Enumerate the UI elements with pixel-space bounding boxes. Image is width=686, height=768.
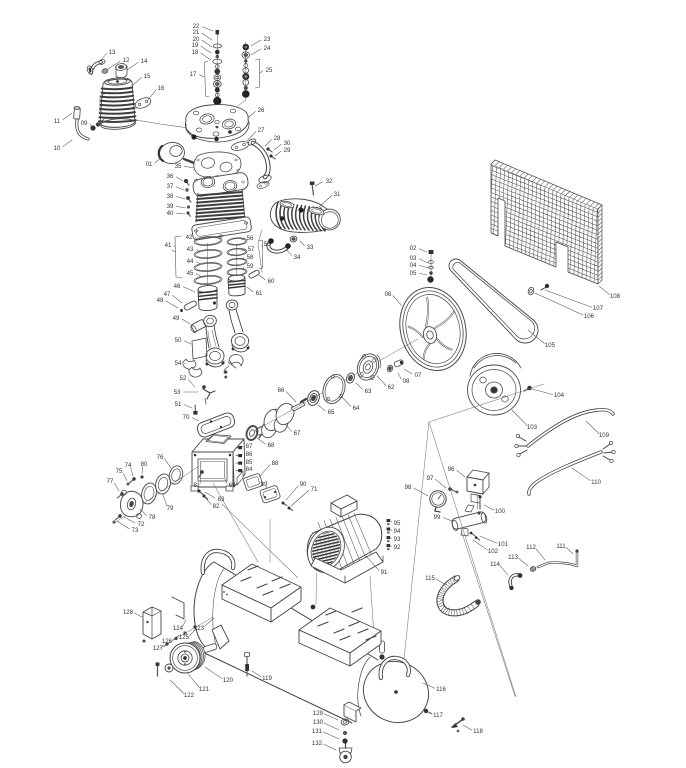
svg-text:04: 04: [410, 262, 417, 269]
svg-text:116: 116: [436, 686, 446, 693]
svg-text:52: 52: [180, 375, 187, 382]
svg-text:56: 56: [247, 235, 254, 242]
svg-text:39: 39: [167, 203, 174, 210]
svg-text:75: 75: [116, 468, 123, 475]
svg-text:58: 58: [247, 254, 254, 261]
svg-text:120: 120: [223, 677, 234, 684]
svg-text:34: 34: [294, 254, 301, 261]
svg-text:118: 118: [473, 728, 483, 735]
svg-text:103: 103: [527, 424, 538, 431]
svg-text:45: 45: [187, 270, 194, 277]
svg-text:91: 91: [381, 569, 388, 576]
svg-text:115: 115: [425, 575, 435, 582]
svg-text:53: 53: [174, 389, 181, 396]
svg-text:121: 121: [199, 686, 210, 693]
svg-text:83: 83: [218, 496, 225, 503]
svg-text:38: 38: [167, 193, 174, 200]
svg-text:67: 67: [294, 430, 301, 437]
svg-text:31: 31: [334, 191, 341, 198]
svg-text:85: 85: [246, 459, 253, 466]
svg-text:131: 131: [312, 728, 323, 735]
svg-text:132: 132: [312, 740, 323, 747]
svg-text:33: 33: [307, 244, 314, 251]
svg-text:02: 02: [410, 245, 417, 252]
svg-text:90: 90: [300, 481, 307, 488]
svg-text:81: 81: [194, 482, 201, 489]
svg-text:66: 66: [278, 387, 285, 394]
svg-text:104: 104: [554, 392, 565, 399]
svg-text:101: 101: [498, 541, 509, 548]
svg-text:122: 122: [184, 692, 195, 699]
svg-text:65: 65: [328, 409, 335, 416]
svg-text:114: 114: [490, 561, 500, 568]
svg-text:01: 01: [146, 161, 153, 168]
svg-text:119: 119: [262, 675, 272, 682]
svg-text:73: 73: [132, 527, 139, 534]
svg-text:113: 113: [508, 554, 518, 561]
svg-text:106: 106: [584, 313, 595, 320]
svg-text:51: 51: [175, 401, 182, 408]
svg-text:102: 102: [488, 548, 499, 555]
svg-text:05: 05: [410, 270, 417, 277]
svg-text:14: 14: [141, 58, 148, 65]
svg-text:13: 13: [109, 49, 116, 56]
svg-text:68: 68: [268, 442, 275, 449]
svg-text:07: 07: [415, 372, 422, 379]
svg-text:111: 111: [556, 543, 566, 550]
svg-text:28: 28: [274, 135, 281, 142]
svg-text:25: 25: [266, 67, 273, 74]
svg-text:17: 17: [190, 71, 197, 78]
svg-text:77: 77: [107, 478, 114, 485]
svg-text:26: 26: [258, 107, 265, 114]
svg-text:46: 46: [174, 283, 181, 290]
svg-text:84: 84: [246, 466, 253, 473]
svg-text:10: 10: [54, 145, 61, 152]
svg-text:82: 82: [213, 503, 220, 510]
svg-text:125: 125: [179, 634, 190, 641]
svg-text:80: 80: [141, 461, 148, 468]
svg-text:124: 124: [173, 625, 184, 632]
svg-text:36: 36: [167, 173, 174, 180]
svg-text:35: 35: [175, 163, 182, 170]
svg-text:55: 55: [264, 241, 271, 248]
svg-text:89: 89: [261, 481, 268, 488]
svg-text:29: 29: [284, 147, 291, 154]
svg-text:86: 86: [246, 451, 253, 458]
svg-text:08: 08: [403, 378, 410, 385]
svg-text:107: 107: [593, 305, 604, 312]
svg-text:49: 49: [173, 315, 180, 322]
svg-text:21: 21: [193, 29, 200, 36]
svg-text:60: 60: [268, 278, 275, 285]
svg-text:40: 40: [167, 210, 174, 217]
svg-text:43: 43: [187, 246, 194, 253]
svg-text:129: 129: [313, 710, 324, 717]
svg-text:27: 27: [258, 127, 265, 134]
svg-text:06: 06: [385, 291, 392, 298]
svg-text:128: 128: [123, 609, 134, 616]
svg-text:54: 54: [175, 360, 182, 367]
svg-text:71: 71: [311, 486, 318, 493]
svg-text:109: 109: [599, 432, 610, 439]
svg-text:97: 97: [427, 475, 434, 482]
svg-text:50: 50: [175, 337, 182, 344]
svg-text:100: 100: [495, 508, 506, 515]
svg-text:110: 110: [591, 479, 601, 486]
svg-text:62: 62: [388, 384, 395, 391]
svg-text:61: 61: [256, 290, 263, 297]
svg-text:92: 92: [394, 544, 401, 551]
svg-text:130: 130: [313, 719, 324, 726]
svg-text:78: 78: [149, 514, 156, 521]
svg-text:15: 15: [144, 73, 151, 80]
svg-text:57: 57: [248, 246, 255, 253]
svg-text:30: 30: [284, 140, 291, 147]
svg-text:127: 127: [153, 645, 164, 652]
svg-text:117: 117: [433, 712, 443, 719]
svg-text:87: 87: [246, 443, 253, 450]
svg-text:59: 59: [247, 263, 254, 270]
svg-text:93: 93: [394, 536, 401, 543]
svg-text:11: 11: [54, 118, 61, 125]
svg-text:42: 42: [186, 234, 193, 241]
svg-text:18: 18: [192, 49, 199, 56]
svg-text:98: 98: [405, 484, 412, 491]
svg-text:69: 69: [229, 482, 236, 489]
svg-text:23: 23: [264, 36, 271, 43]
svg-text:63: 63: [365, 388, 372, 395]
svg-text:76: 76: [157, 454, 164, 461]
svg-text:24: 24: [264, 45, 271, 52]
svg-text:105: 105: [545, 342, 556, 349]
svg-text:79: 79: [167, 505, 174, 512]
svg-text:41: 41: [165, 242, 172, 249]
svg-text:99: 99: [434, 514, 441, 521]
svg-text:19: 19: [192, 42, 199, 49]
svg-text:32: 32: [326, 178, 333, 185]
svg-text:37: 37: [167, 183, 174, 190]
svg-text:88: 88: [272, 460, 279, 467]
svg-text:70: 70: [183, 414, 190, 421]
svg-text:94: 94: [394, 528, 401, 535]
svg-text:108: 108: [610, 293, 621, 300]
svg-text:44: 44: [187, 258, 194, 265]
svg-text:96: 96: [448, 466, 455, 473]
svg-text:03: 03: [410, 255, 417, 262]
svg-text:95: 95: [394, 520, 401, 527]
svg-text:48: 48: [157, 297, 164, 304]
svg-text:112: 112: [526, 544, 536, 551]
svg-text:47: 47: [164, 291, 171, 298]
svg-text:72: 72: [138, 521, 145, 528]
svg-text:16: 16: [158, 85, 165, 92]
svg-text:12: 12: [123, 57, 130, 64]
svg-text:09: 09: [81, 120, 88, 127]
svg-text:123: 123: [194, 625, 205, 632]
svg-text:64: 64: [353, 405, 360, 412]
